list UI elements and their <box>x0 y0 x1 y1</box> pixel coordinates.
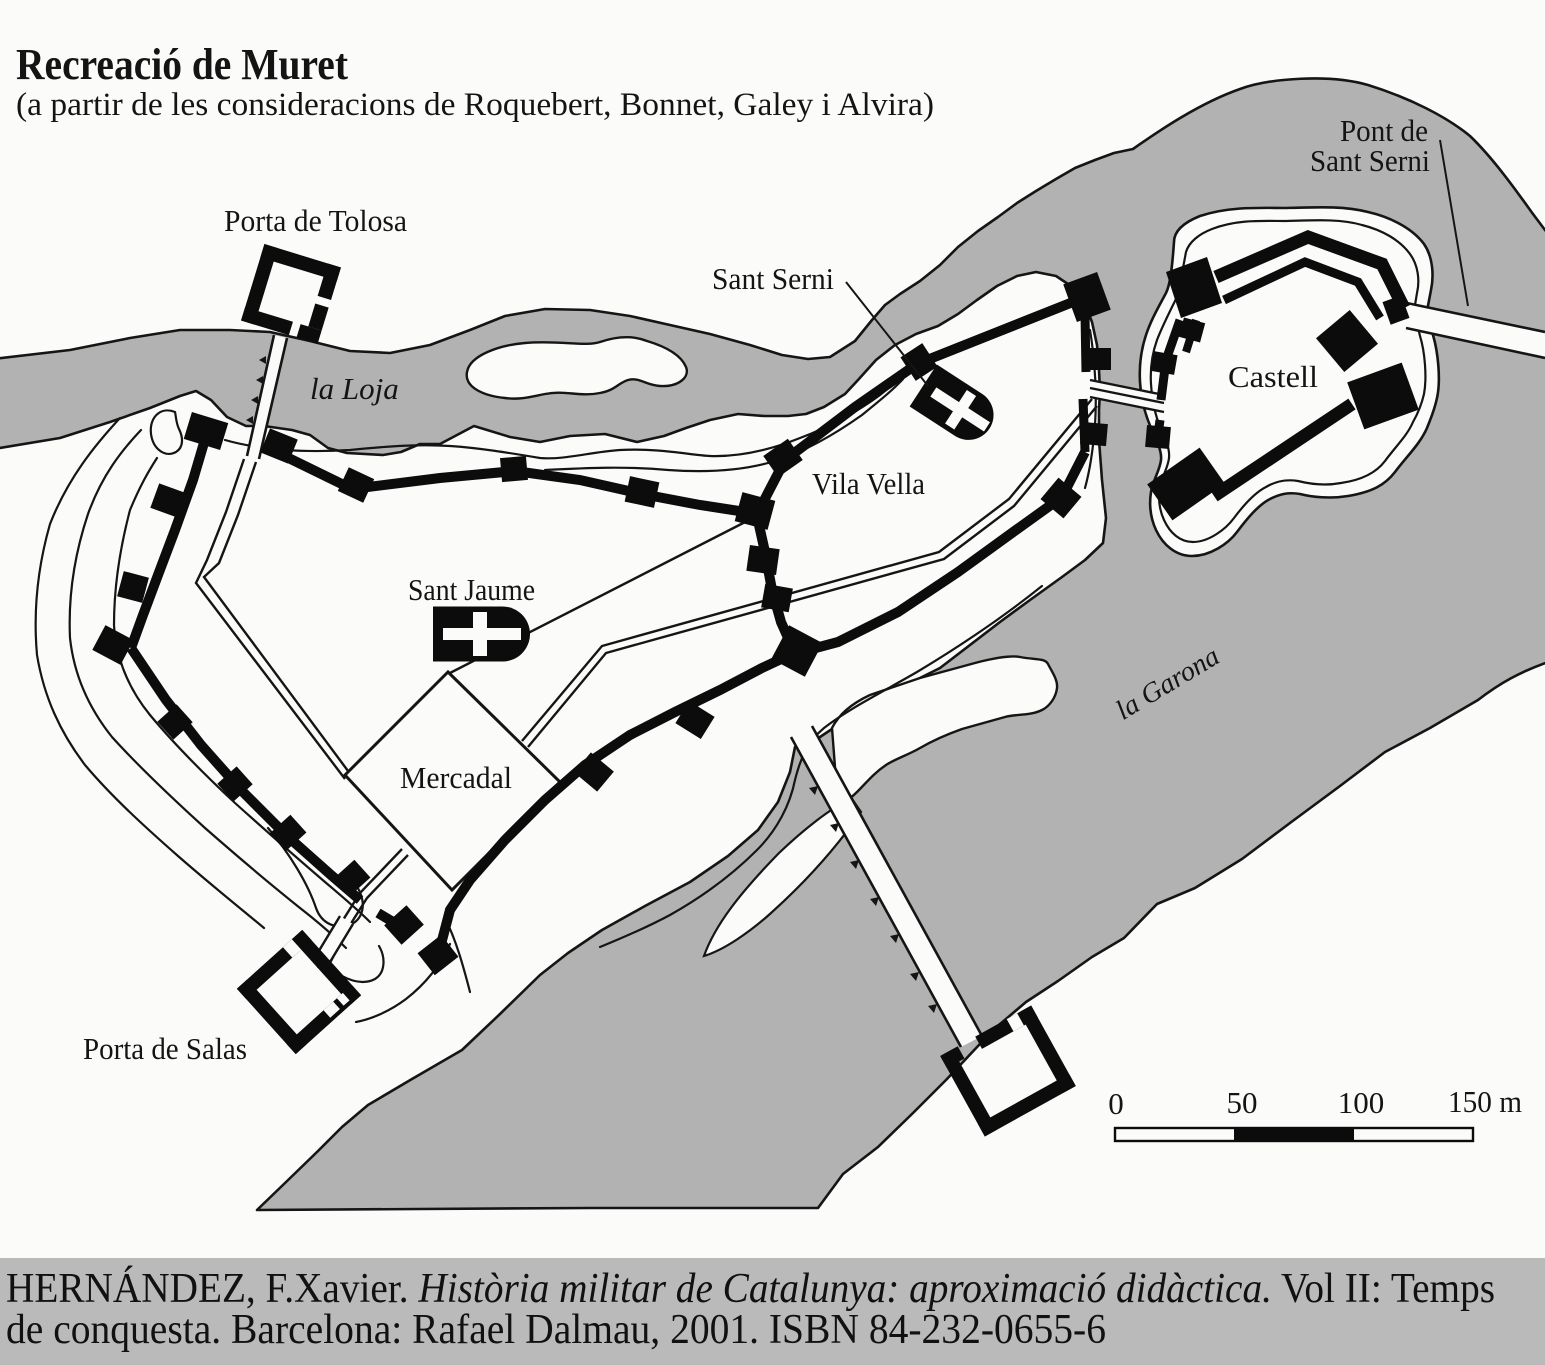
svg-text:Mercadal: Mercadal <box>400 760 512 795</box>
svg-text:Porta de Tolosa: Porta de Tolosa <box>224 203 407 238</box>
svg-text:50: 50 <box>1227 1085 1258 1120</box>
svg-text:(a partir de les consideracion: (a partir de les consideracions de Roque… <box>16 87 934 123</box>
svg-text:Sant Serni: Sant Serni <box>1310 143 1430 178</box>
svg-text:de conquesta. Barcelona: Rafae: de conquesta. Barcelona: Rafael Dalmau, … <box>6 1307 1106 1353</box>
svg-text:la Loja: la Loja <box>310 371 399 406</box>
svg-text:150 m: 150 m <box>1448 1084 1522 1119</box>
svg-text:Sant Serni: Sant Serni <box>712 261 834 296</box>
svg-text:Porta de Salas: Porta de Salas <box>83 1031 247 1066</box>
svg-text:HERNÁNDEZ, F.Xavier. Història: HERNÁNDEZ, F.Xavier. Història militar de… <box>6 1265 1495 1312</box>
svg-text:Recreació de Muret: Recreació de Muret <box>16 40 348 89</box>
svg-text:100: 100 <box>1338 1085 1385 1120</box>
svg-text:0: 0 <box>1108 1086 1124 1121</box>
svg-text:Castell: Castell <box>1228 359 1318 394</box>
svg-text:Sant Jaume: Sant Jaume <box>408 572 535 607</box>
svg-text:Vila Vella: Vila Vella <box>812 466 925 501</box>
